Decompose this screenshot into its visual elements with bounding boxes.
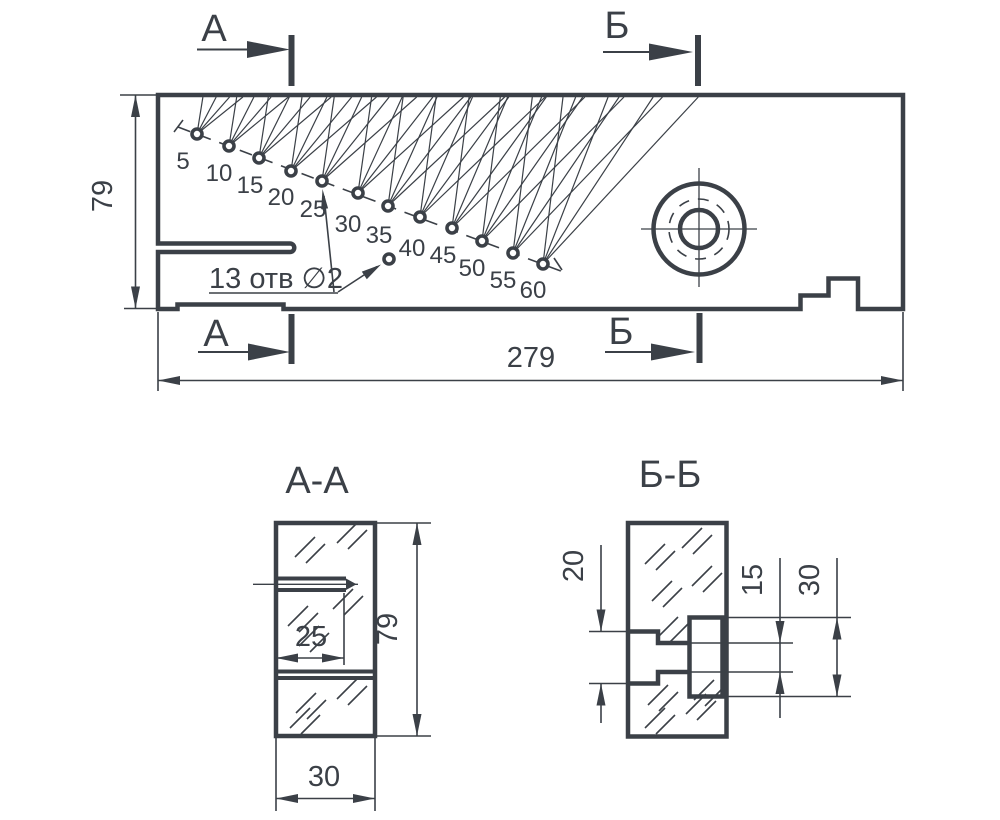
small-hole	[383, 201, 393, 211]
marker-arrowhead	[247, 41, 290, 58]
leader-arrowhead	[362, 265, 381, 280]
section-marker-b-top: Б	[603, 5, 698, 86]
section-view-bb: Б-Б 20 15	[558, 454, 851, 737]
hatch-stroke	[669, 624, 688, 643]
hatch-stroke	[658, 617, 678, 637]
technical-drawing-page: 51015202530354045505560 А Б А	[0, 0, 1000, 820]
dim-arrowhead	[276, 654, 298, 663]
dim-value: 79	[372, 613, 404, 645]
fan-line	[482, 97, 624, 241]
fan-lines	[197, 97, 698, 264]
section-marker-a-bottom: А	[198, 313, 292, 364]
hatch-stroke	[301, 715, 320, 734]
hatch-stroke	[692, 566, 712, 586]
fan-line	[259, 97, 331, 158]
hatch-stroke	[682, 528, 702, 548]
dim-arrowhead	[881, 376, 903, 385]
small-hole	[353, 188, 363, 198]
dim-value: 30	[308, 761, 340, 793]
hole-label: 35	[366, 222, 393, 249]
section-view-aa: А-А 25 79	[253, 460, 431, 811]
cavity-lower-edge	[628, 672, 690, 684]
dim-hole-depth-25: 25	[276, 593, 344, 665]
small-hole	[538, 259, 548, 269]
hatch-stroke	[648, 685, 668, 705]
hatch-stroke	[306, 544, 325, 563]
hatch-stroke	[659, 692, 678, 711]
dim-arrowhead	[413, 523, 422, 545]
small-hole	[192, 129, 202, 139]
hole-label: 20	[268, 184, 295, 211]
hatch-stroke	[645, 544, 665, 564]
dim-arrowhead	[131, 287, 140, 309]
small-hole	[286, 166, 296, 176]
hatch-stroke	[337, 679, 357, 699]
dim-hole-15: 15	[737, 558, 785, 718]
section-title: Б-Б	[639, 454, 702, 496]
dim-value: 15	[737, 564, 769, 596]
dim-arrowhead	[131, 95, 140, 117]
hole-label: 5	[176, 148, 189, 175]
section-title: А-А	[285, 460, 349, 502]
hatch-stroke	[645, 708, 665, 728]
marker-arrowhead	[651, 344, 695, 361]
hatch-stroke	[703, 573, 722, 592]
dim-section-width-30: 30	[276, 738, 375, 811]
fan-line	[543, 97, 698, 264]
hatch-stroke	[663, 588, 682, 607]
cavity-upper-edge	[628, 632, 690, 644]
dim-arrowhead	[776, 672, 785, 694]
dim-arrowhead	[597, 684, 606, 706]
counterbore-right	[690, 618, 723, 697]
hatch-stroke	[348, 686, 367, 705]
hatch-stroke	[295, 537, 315, 557]
small-hole	[384, 254, 394, 264]
marker-label: Б	[605, 5, 630, 47]
note-text: 13 отв ∅2	[209, 263, 343, 295]
small-hole	[254, 153, 264, 163]
fan-line	[291, 97, 377, 171]
section-marker-a-top: А	[197, 8, 292, 86]
dim-arrowhead	[597, 610, 606, 632]
small-hole	[317, 176, 327, 186]
hatch-stroke	[337, 523, 357, 543]
technical-drawing: 51015202530354045505560 А Б А	[0, 0, 1000, 820]
marker-label: А	[203, 313, 229, 355]
hole-label: 60	[520, 277, 547, 304]
dim-height-79: 79	[87, 95, 158, 309]
marker-label: Б	[609, 311, 634, 353]
marker-arrowhead	[649, 44, 693, 61]
hole-label: 30	[335, 211, 362, 238]
dim-value: 30	[794, 564, 826, 596]
hatch-stroke	[344, 596, 363, 615]
hatch-stroke	[656, 551, 675, 570]
dim-counterbore-20: 20	[558, 545, 628, 723]
dim-value: 20	[558, 550, 590, 582]
fan-line	[513, 97, 663, 253]
small-hole	[224, 141, 234, 151]
hole-label: 10	[206, 160, 233, 187]
small-hole	[508, 248, 518, 258]
fan-line	[229, 97, 288, 146]
dim-section-height-79: 79	[372, 523, 431, 736]
section-marker-b-bottom: Б	[605, 311, 700, 363]
marker-arrowhead	[248, 344, 290, 361]
dim-arrowhead	[353, 794, 375, 803]
dim-arrowhead	[322, 654, 344, 663]
dim-arrowhead	[276, 794, 298, 803]
leader-arrowhead	[321, 189, 328, 209]
counterbored-hole-feature	[641, 168, 757, 287]
stepped-hole-cavity	[628, 618, 793, 697]
hole-label: 40	[399, 235, 426, 262]
dim-arrowhead	[158, 376, 180, 385]
hatch-stroke	[656, 715, 675, 734]
hole-label: 50	[459, 255, 486, 282]
dim-value: 79	[87, 180, 119, 212]
dim-arrowhead	[413, 714, 422, 736]
dim-value: 25	[295, 621, 327, 653]
marker-label: А	[201, 8, 227, 50]
hole-label: 15	[237, 172, 264, 199]
main-view: 51015202530354045505560 А Б А	[87, 5, 903, 391]
hatch-stroke	[693, 535, 712, 554]
drilled-hole-section	[253, 579, 358, 591]
dim-arrowhead	[776, 621, 785, 643]
hatch-stroke	[296, 693, 316, 713]
dim-arrowhead	[833, 675, 842, 697]
hole-label: 55	[490, 267, 517, 294]
small-hole	[447, 223, 457, 233]
dim-value: 279	[507, 342, 555, 374]
hatch-stroke	[307, 700, 326, 719]
small-hole	[477, 236, 487, 246]
hole-row-hook-start	[174, 120, 183, 132]
hole-label: 45	[430, 242, 457, 269]
small-hole	[415, 212, 425, 222]
dim-arrowhead	[833, 618, 842, 640]
hatch-stroke	[348, 530, 367, 549]
hatch-stroke	[652, 581, 672, 601]
